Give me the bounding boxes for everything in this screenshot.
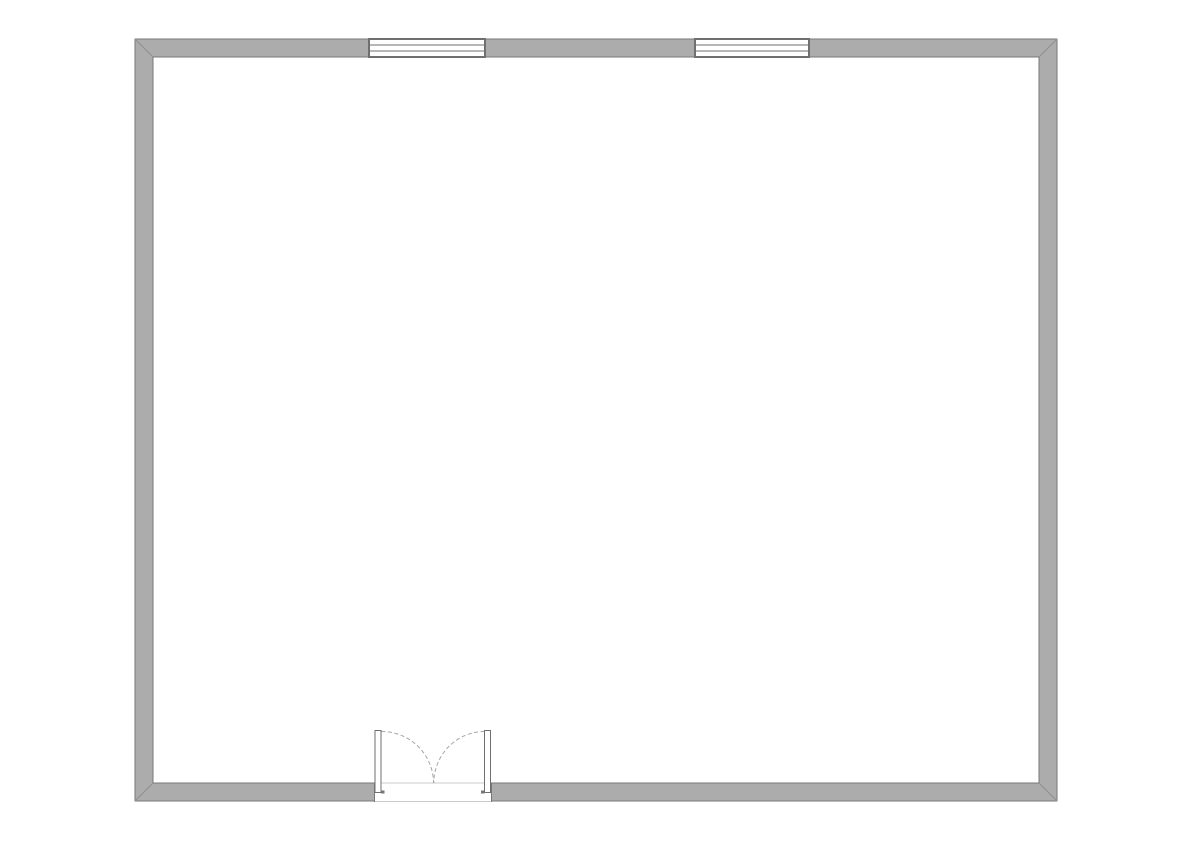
room-interior-floor bbox=[153, 57, 1039, 783]
floorplan-canvas[interactable] bbox=[0, 0, 1191, 842]
floorplan-drawing bbox=[0, 0, 1191, 842]
north-window-left[interactable] bbox=[369, 39, 485, 57]
door-leaf-foot-left bbox=[381, 791, 385, 794]
door-opening-threshold[interactable] bbox=[375, 783, 492, 803]
north-window-right[interactable] bbox=[695, 39, 809, 57]
door-leaf-foot-right bbox=[481, 791, 485, 794]
door-right-leaf[interactable] bbox=[485, 731, 491, 793]
door-left-leaf[interactable] bbox=[375, 731, 381, 793]
